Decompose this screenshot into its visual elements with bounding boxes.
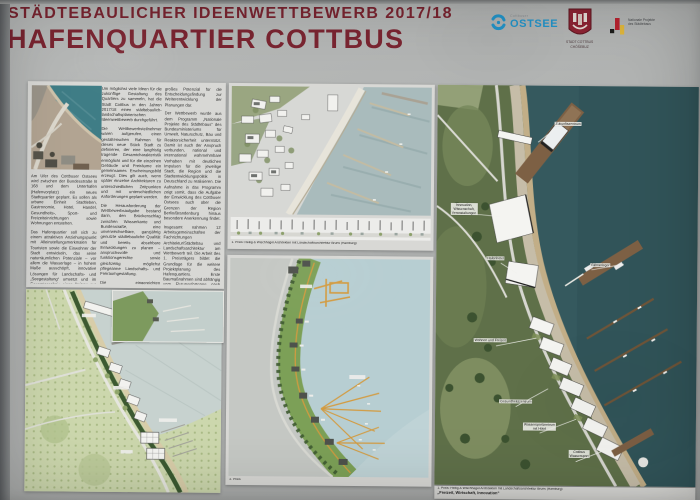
paragraph: Die Wettbewerbsteilnehmer waren aufgeruf… <box>101 126 162 200</box>
paragraph: Der Wettbewerb wurde aus dem Programm „N… <box>164 111 222 221</box>
siteplan-middle-panel: 2. Preis <box>225 255 433 487</box>
article-column-2: Um möglichst viele Ideen für die zukünft… <box>100 86 162 285</box>
paragraph: Um möglichst viele Ideen für die zukünft… <box>102 86 162 123</box>
map-label-innovation: Innovation, Wissenschaft, Veranstaltunge… <box>451 203 478 215</box>
map-label-wohnen-freizeit: Wohnen und Freizeit <box>474 338 507 342</box>
paragraph: Das Hafenquartier soll sich zu einem att… <box>30 229 96 284</box>
round-tank <box>638 457 648 467</box>
render-caption: 1. Preis: Heilig & Wischhagel Architekte… <box>231 241 429 247</box>
article-column-1: Am Ufer des Cottbuser Ostsees wird zwisc… <box>30 173 97 284</box>
map-label-faehranleger: Fähranleger <box>590 263 610 267</box>
board-frame-top <box>0 0 700 4</box>
map-label-line: Wassersport <box>570 454 589 458</box>
map-label-cottbus-wassersport: Cottbus Wassersport <box>569 450 590 458</box>
siteplan-left-panel <box>24 289 222 493</box>
article-panel: Am Ufer des Cottbuser Ostsees wird zwisc… <box>26 81 226 289</box>
paragraph: großes Potenzial für die Entscheidungsfi… <box>165 86 222 107</box>
siteplan-middle-caption: 2. Preis <box>229 478 427 484</box>
paragraph: Die Herausforderung der Wettbewerbsaufga… <box>100 203 161 277</box>
map-label-hafenhotel: Hafenhotel <box>486 256 504 260</box>
aerial-render-image <box>231 86 432 216</box>
masterplan-map-panel: Zukunftszentrum Innovation, Wissenschaft… <box>434 85 698 487</box>
paragraph: Die eingereichten Wettbewerbsarbeiten ze… <box>100 280 160 285</box>
siteplan-middle-image <box>228 258 430 478</box>
article-column-3: großes Potenzial für die Entscheidungsfi… <box>163 86 222 284</box>
winning-render-panel: 1. Preis: Heilig & Wischhagel Architekte… <box>227 83 434 251</box>
map-label-zukunftszentrum: Zukunftszentrum <box>555 122 582 126</box>
section-elevation-strip <box>231 217 431 241</box>
poster-content-sheet: Am Ufer des Cottbuser Ostsees wird zwisc… <box>0 0 700 500</box>
map-label-line: mit Hotel <box>524 427 555 431</box>
paragraph: Insgesamt nahmen 12 Arbeitsgemeinschafte… <box>163 224 221 285</box>
board-frame-bottom <box>0 496 700 500</box>
map-label-wassersportzentrum: Wassersportzentrum mit Hotel <box>523 423 556 431</box>
paragraph: Am Ufer des Cottbuser Ostsees wird zwisc… <box>31 173 97 226</box>
map-label-line: Veranstaltungen <box>452 211 477 215</box>
board-frame-left <box>0 0 10 500</box>
masterplan-map-image <box>434 85 698 487</box>
poster-photo: STÄDTEBAULICHER IDEENWETTBEWERB 2017/18 … <box>0 0 700 500</box>
aerial-photo-thumbnail <box>31 85 102 170</box>
map-label-gesundheitszentrum: Gesundheitszentrum <box>499 399 532 403</box>
plan-inset-render <box>112 290 224 343</box>
